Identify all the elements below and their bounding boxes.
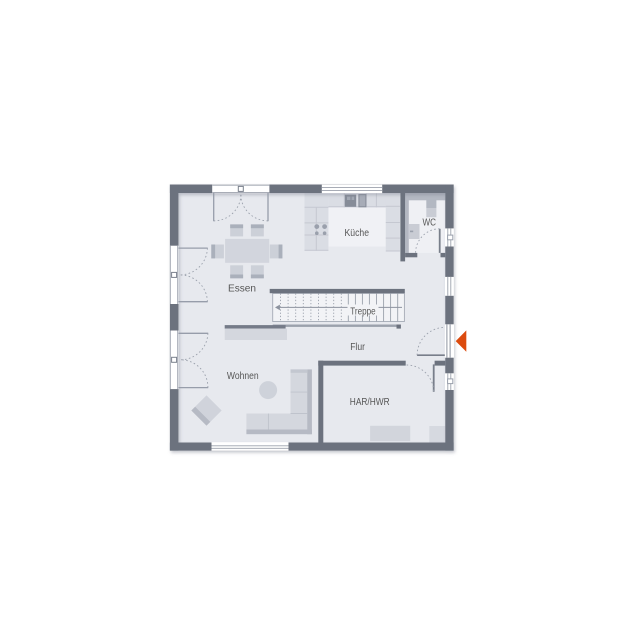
svg-text:WC: WC bbox=[423, 217, 437, 229]
svg-text:Flur: Flur bbox=[350, 341, 365, 353]
svg-text:Wohnen: Wohnen bbox=[227, 370, 259, 382]
svg-text:HAR/HWR: HAR/HWR bbox=[350, 396, 390, 408]
svg-text:Treppe: Treppe bbox=[350, 306, 375, 318]
svg-text:Essen: Essen bbox=[228, 282, 256, 294]
svg-text:Küche: Küche bbox=[345, 227, 370, 239]
